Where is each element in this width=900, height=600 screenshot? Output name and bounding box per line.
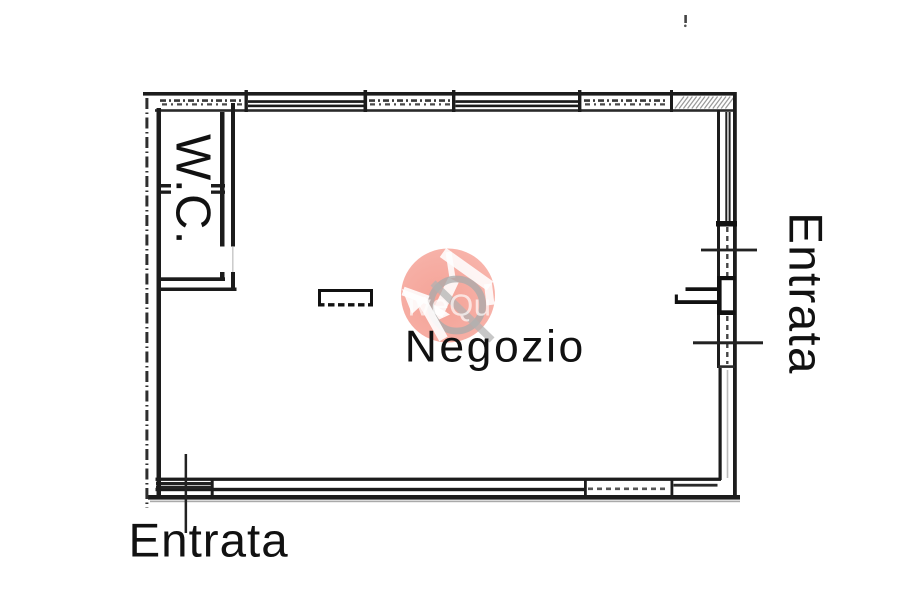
svg-text:W.C.: W.C. — [166, 134, 220, 246]
svg-text:Entrata: Entrata — [779, 212, 832, 375]
svg-text:iveQuadro: iveQuadro — [408, 288, 556, 323]
svg-text:Negozio: Negozio — [405, 323, 586, 372]
svg-text:Entrata: Entrata — [129, 515, 289, 568]
